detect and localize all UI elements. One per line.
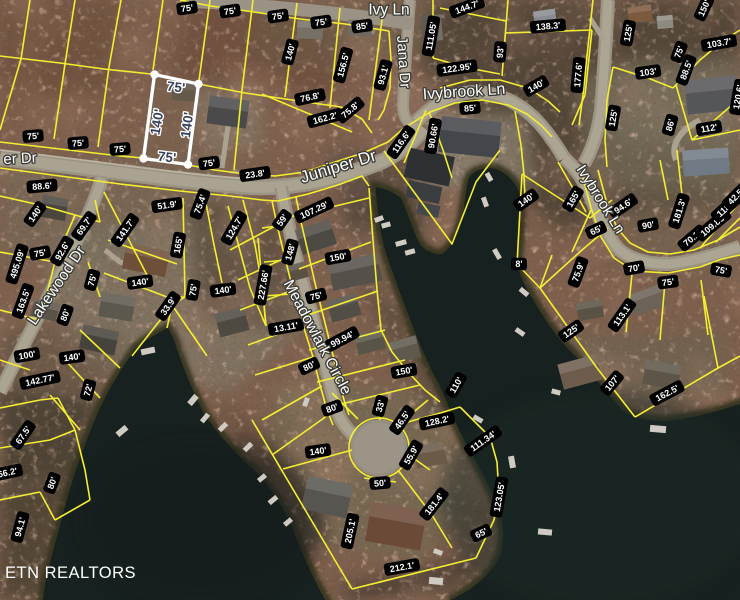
svg-text:ETN REALTORS: ETN REALTORS: [5, 564, 136, 582]
svg-text:8': 8': [515, 259, 522, 269]
svg-text:177.6': 177.6': [572, 62, 584, 87]
svg-text:70': 70': [627, 262, 641, 274]
svg-text:85': 85': [355, 20, 368, 32]
svg-text:75': 75': [166, 79, 186, 96]
svg-text:75': 75': [714, 264, 728, 276]
svg-text:75': 75': [223, 5, 236, 17]
svg-text:50': 50': [374, 478, 387, 489]
svg-text:75': 75': [661, 276, 674, 288]
svg-text:75': 75': [33, 247, 47, 259]
svg-text:Ivy Ln: Ivy Ln: [368, 1, 409, 18]
svg-text:85': 85': [464, 103, 477, 114]
svg-text:75': 75': [187, 283, 199, 297]
svg-text:75': 75': [72, 138, 85, 149]
svg-text:75': 75': [114, 144, 127, 155]
svg-text:75': 75': [314, 16, 327, 28]
svg-text:75': 75': [157, 149, 177, 166]
svg-text:88.6': 88.6': [32, 180, 52, 192]
svg-text:93': 93': [495, 46, 506, 59]
svg-text:75': 75': [202, 157, 215, 169]
svg-text:er Dr: er Dr: [3, 149, 37, 168]
svg-text:75': 75': [27, 131, 40, 142]
svg-text:90': 90': [641, 219, 655, 231]
svg-text:75': 75': [271, 10, 284, 22]
svg-text:138.3': 138.3': [535, 20, 560, 32]
svg-text:75': 75': [180, 2, 193, 14]
